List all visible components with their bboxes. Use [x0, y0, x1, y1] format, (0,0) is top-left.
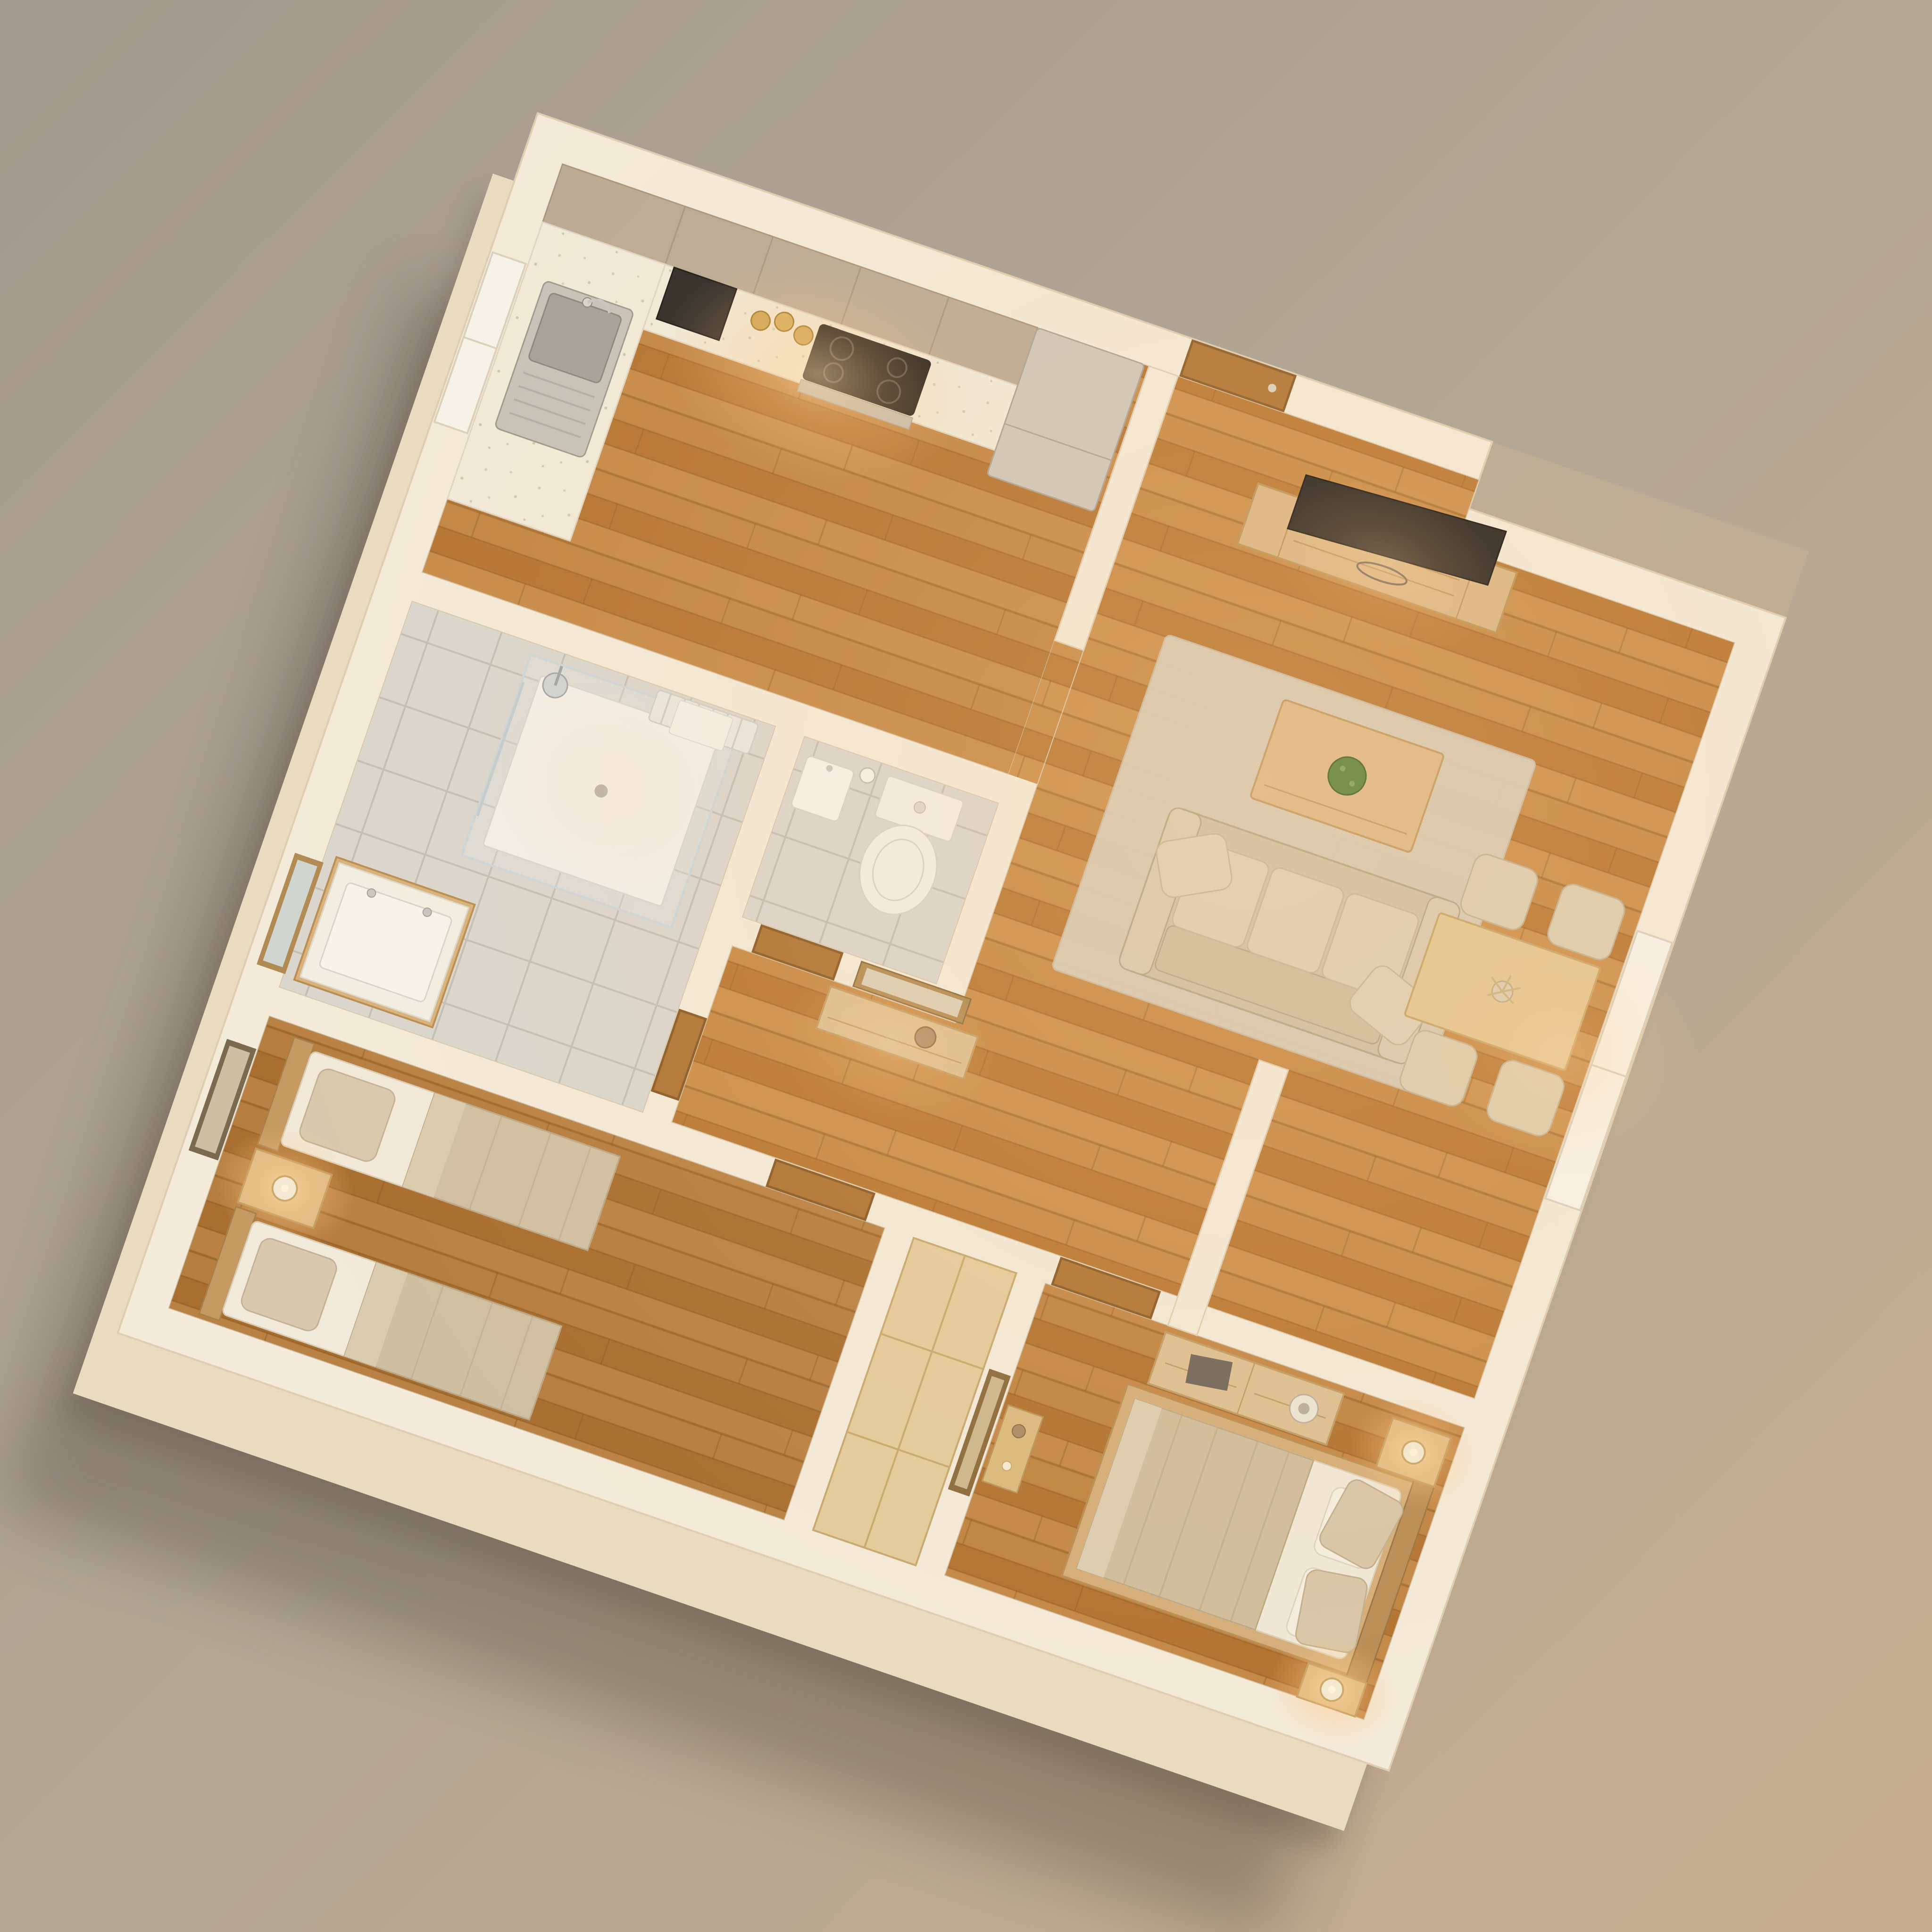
floorplan-render — [0, 0, 1932, 1932]
